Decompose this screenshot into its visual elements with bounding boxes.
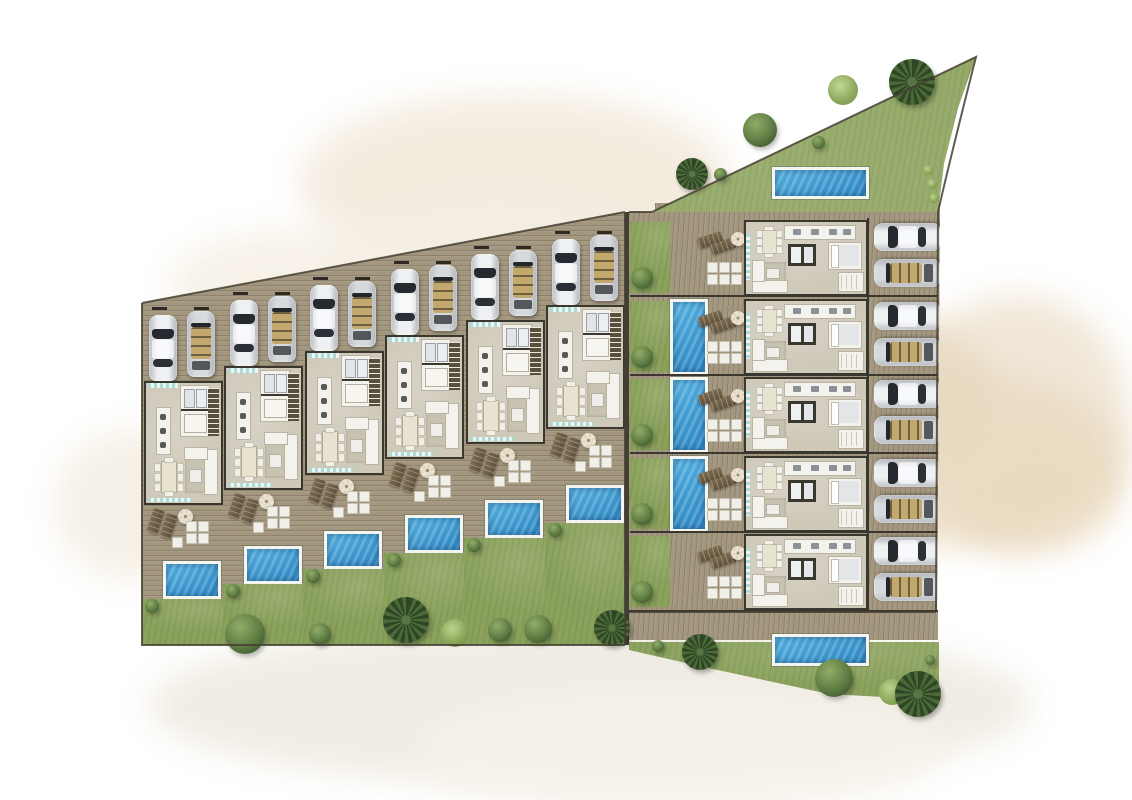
parking-bumper: [152, 307, 167, 310]
appliance-mark: [843, 386, 851, 392]
car-windshield: [886, 263, 890, 283]
car-cabin-tan: [594, 251, 614, 283]
villa-interior: [546, 305, 625, 429]
outdoor-cushion: [731, 262, 742, 273]
appliance-mark: [843, 543, 851, 549]
appliance-mark: [793, 386, 801, 392]
outdoor-cushion: [719, 431, 730, 442]
chair: [776, 317, 783, 325]
chair: [499, 422, 506, 431]
fern-plant: [441, 619, 469, 647]
parasol: [731, 311, 745, 325]
private-pool: [244, 546, 302, 584]
chair: [579, 387, 586, 396]
bath-closet-rooms: [582, 309, 612, 361]
chair: [776, 230, 783, 238]
garden-shrub: [929, 193, 939, 203]
sofa: [506, 386, 530, 399]
car-sedan: [391, 269, 419, 335]
car-rotated-body: [874, 338, 940, 366]
side-garden-lawn: [630, 379, 670, 450]
appliance-mark: [793, 229, 801, 235]
car-rear-window: [395, 313, 415, 321]
car-windshield: [888, 540, 898, 562]
palm-tree: [594, 610, 630, 646]
terrace-glazing: [389, 452, 433, 456]
site-plan: [0, 0, 1132, 800]
car-roof: [899, 305, 917, 327]
garden-lawn: [142, 599, 223, 645]
dining-table: [762, 544, 777, 568]
room-divider: [261, 394, 289, 396]
chair: [476, 422, 483, 431]
outdoor-cushion: [494, 476, 505, 487]
terrace-glazing: [148, 498, 192, 502]
sink-hob-mark: [401, 396, 407, 402]
chair: [395, 417, 402, 426]
outdoor-cushion: [575, 461, 586, 472]
dining-area: [754, 226, 782, 256]
parking-bumper: [516, 246, 531, 249]
outdoor-cushion: [253, 522, 264, 533]
round-tree: [815, 659, 853, 697]
side-garden-lawn: [630, 458, 670, 529]
car-cabin-tan: [890, 499, 922, 519]
sink-hob-mark: [321, 384, 327, 390]
chair: [164, 491, 174, 497]
north-amenity-pool: [772, 167, 869, 199]
chair: [776, 560, 783, 568]
bathtub: [586, 313, 597, 332]
villa-interior: [744, 299, 868, 375]
car-windshield: [886, 577, 890, 597]
parking-wall: [867, 454, 869, 532]
parking-bumper: [275, 292, 290, 295]
chair: [776, 403, 783, 411]
outdoor-cushion: [707, 353, 718, 364]
chair: [764, 305, 774, 310]
bedroom-bed: [828, 478, 862, 506]
car-windshield: [888, 226, 898, 248]
parasol: [731, 232, 745, 246]
wardrobe: [838, 272, 864, 292]
room-divider: [422, 363, 450, 365]
car-rear-window: [918, 463, 926, 483]
living-area: [184, 445, 219, 499]
sink-hob-mark: [160, 442, 166, 448]
car-rear-window: [556, 283, 576, 291]
palm-tree: [682, 634, 718, 670]
bed-pillow: [831, 559, 839, 582]
outdoor-cushion: [707, 274, 718, 285]
bathtub: [506, 328, 517, 347]
coffee-table: [591, 393, 604, 407]
garden-shrub: [927, 179, 937, 189]
coffee-table: [766, 347, 780, 358]
outdoor-cushion: [707, 576, 718, 587]
bath-fixture: [791, 483, 801, 499]
villa-interior: [305, 351, 384, 475]
car-windshield: [886, 420, 890, 440]
chair: [776, 309, 783, 317]
palm-tree: [895, 671, 941, 717]
outdoor-cushion: [707, 262, 718, 273]
sink-hob-mark: [240, 399, 246, 405]
car-convertible: [429, 265, 457, 331]
villa-interior: [385, 335, 464, 459]
car-roof: [233, 325, 255, 343]
vanity: [437, 343, 448, 362]
outdoor-cushion: [520, 472, 531, 483]
chair: [579, 397, 586, 406]
staircase: [208, 388, 219, 436]
chair: [556, 397, 563, 406]
pool-side-glazing: [746, 470, 750, 516]
bath-fixture: [804, 247, 813, 263]
dining-area: [476, 396, 504, 434]
car-roof: [899, 383, 917, 405]
bathroom-core: [788, 323, 816, 345]
outdoor-cushion: [186, 521, 197, 532]
closet: [345, 384, 368, 403]
chair: [756, 387, 763, 395]
car-convertible: [874, 573, 940, 601]
wardrobe-lines: [841, 589, 861, 603]
car-sedan: [874, 223, 940, 251]
kitchen-island: [478, 346, 493, 394]
chair: [418, 427, 425, 436]
appliance-mark: [829, 229, 837, 235]
car-windshield: [433, 277, 453, 281]
car-convertible: [874, 495, 940, 523]
car-convertible: [874, 259, 940, 287]
parking-wall: [867, 297, 869, 375]
car-rear-window: [918, 306, 926, 326]
villa-interior: [744, 220, 868, 296]
car-trunk: [514, 300, 532, 309]
bathroom-core: [788, 558, 816, 580]
room-divider: [181, 409, 209, 411]
chair: [756, 544, 763, 552]
bedroom-bed: [828, 242, 862, 270]
garden-shrub: [467, 538, 481, 552]
appliance-mark: [811, 543, 819, 549]
chair: [566, 415, 576, 421]
appliance-mark: [793, 465, 801, 471]
car-convertible: [874, 259, 940, 287]
outdoor-cushion: [267, 518, 278, 529]
outdoor-cushion: [347, 503, 358, 514]
chair: [395, 427, 402, 436]
car-windshield: [886, 342, 890, 362]
outdoor-cushion: [731, 576, 742, 587]
bathtub: [345, 359, 356, 378]
parking-bumper: [394, 261, 409, 264]
wardrobe: [838, 351, 864, 371]
parking-bumper: [555, 231, 570, 234]
outdoor-cushion: [731, 353, 742, 364]
chair: [154, 483, 161, 492]
sofa: [752, 574, 765, 596]
parking-bumper: [313, 277, 328, 280]
villa-unit: [545, 190, 626, 645]
outdoor-cushion: [347, 491, 358, 502]
closet: [184, 414, 207, 433]
car-roof: [152, 340, 174, 358]
bedroom-bed: [828, 556, 862, 584]
outdoor-cushion: [731, 274, 742, 285]
chair: [154, 473, 161, 482]
dining-table: [762, 387, 777, 411]
chair: [234, 448, 241, 457]
entry-glazing: [228, 368, 258, 373]
outdoor-cushion: [707, 510, 718, 521]
pool-side-glazing: [746, 391, 750, 437]
closet: [586, 338, 609, 357]
closet: [264, 399, 287, 418]
private-pool: [566, 485, 624, 523]
villa-unit: [629, 375, 940, 454]
sofa: [752, 260, 765, 282]
watercolor-wash: [420, 690, 940, 800]
chair: [486, 396, 496, 402]
boundary-wall: [625, 212, 629, 645]
side-plunge-pool: [670, 456, 708, 532]
car-roof: [313, 310, 335, 328]
garden-shrub: [145, 599, 159, 613]
outdoor-cushion: [508, 460, 519, 471]
outdoor-cushion: [707, 341, 718, 352]
car-rotated-body: [874, 459, 940, 487]
sink-hob-mark: [562, 352, 568, 358]
dining-table: [241, 446, 257, 478]
outdoor-cushion: [428, 487, 439, 498]
chair: [234, 458, 241, 467]
car-rear-window: [475, 298, 495, 306]
chair: [776, 466, 783, 474]
bathroom-core: [788, 480, 816, 502]
villa-unit: [629, 218, 940, 297]
car-cabin-tan: [191, 327, 211, 359]
outdoor-cushion: [719, 353, 730, 364]
chair: [556, 387, 563, 396]
car-windshield: [394, 283, 416, 293]
coffee-table: [430, 423, 443, 437]
dining-area: [556, 381, 584, 419]
chair: [756, 395, 763, 403]
chair: [418, 437, 425, 446]
chair: [556, 407, 563, 416]
garden-shrub: [923, 165, 933, 175]
bed-pillow: [831, 245, 839, 268]
outdoor-cushion: [172, 537, 183, 548]
chair: [776, 552, 783, 560]
car-sedan: [149, 315, 177, 381]
chair: [764, 226, 774, 231]
car-convertible: [874, 495, 940, 523]
chair: [579, 407, 586, 416]
entry-glazing: [148, 383, 178, 388]
round-tree: [488, 618, 512, 642]
car-convertible: [874, 338, 940, 366]
parking-bumper: [194, 307, 209, 310]
living-area: [345, 415, 380, 469]
appliance-mark: [829, 308, 837, 314]
staircase: [530, 327, 541, 375]
villa-unit: [629, 454, 940, 533]
palm-tree: [889, 59, 935, 105]
parking-wall: [867, 375, 869, 453]
car-convertible: [874, 573, 940, 601]
vanity: [357, 359, 368, 378]
car-roof: [899, 540, 917, 562]
car-convertible: [348, 281, 376, 347]
garden-shrub: [631, 424, 653, 446]
side-plunge-pool: [670, 299, 708, 375]
bath-closet-rooms: [260, 370, 290, 422]
dining-area: [315, 427, 343, 465]
entry-glazing: [389, 337, 419, 342]
sink-hob-mark: [401, 382, 407, 388]
appliance-mark: [843, 308, 851, 314]
car-sedan: [874, 537, 940, 565]
outdoor-cushion: [719, 262, 730, 273]
coffee-table: [269, 454, 282, 468]
kitchen-counter: [784, 225, 856, 240]
vanity: [276, 374, 287, 393]
car-rotated-body: [874, 537, 940, 565]
sink-hob-mark: [321, 398, 327, 404]
chair: [776, 482, 783, 490]
pool-side-glazing: [746, 313, 750, 359]
car-rotated-body: [874, 259, 940, 287]
car-sedan: [471, 254, 499, 320]
car-convertible: [874, 338, 940, 366]
bath-fixture: [804, 404, 813, 420]
private-pool: [485, 500, 543, 538]
side-plunge-pool: [670, 377, 708, 453]
car-windshield: [474, 268, 496, 278]
outdoor-cushion: [279, 518, 290, 529]
chair: [566, 381, 576, 387]
wardrobe: [838, 586, 864, 606]
car-windshield: [233, 314, 255, 324]
villa-interior: [466, 320, 545, 444]
chair: [499, 402, 506, 411]
round-tree: [524, 615, 552, 643]
car-trunk: [924, 500, 933, 518]
sofa: [752, 417, 765, 439]
car-cabin-tan: [433, 281, 453, 313]
appliance-mark: [843, 465, 851, 471]
wardrobe: [838, 508, 864, 528]
car-rear-window: [918, 227, 926, 247]
watercolor-wash: [950, 430, 1120, 550]
chair: [756, 474, 763, 482]
sink-hob-mark: [321, 412, 327, 418]
coffee-table: [766, 504, 780, 515]
outdoor-cushion: [719, 419, 730, 430]
garden-shrub: [925, 655, 935, 665]
car-rotated-body: [874, 223, 940, 251]
outdoor-cushion: [428, 475, 439, 486]
car-rotated-body: [874, 495, 940, 523]
parasol: [731, 389, 745, 403]
living-area: [506, 384, 541, 438]
chair: [776, 246, 783, 254]
garden-shrub: [631, 346, 653, 368]
parking-wall: [867, 218, 869, 296]
garden-shrub: [812, 136, 825, 149]
chair: [776, 387, 783, 395]
chair: [315, 433, 322, 442]
dining-table: [762, 309, 777, 333]
car-rear-window: [314, 329, 334, 337]
staircase: [288, 373, 299, 421]
car-sedan: [310, 285, 338, 351]
car-sedan: [230, 300, 258, 366]
chair: [315, 443, 322, 452]
living-area: [752, 258, 790, 292]
parking-bumper: [474, 246, 489, 249]
bath-fixture: [791, 561, 801, 577]
sink-hob-mark: [160, 428, 166, 434]
chair: [315, 453, 322, 462]
appliance-mark: [829, 465, 837, 471]
chair: [338, 453, 345, 462]
kitchen-island: [558, 331, 573, 379]
car-windshield: [513, 262, 533, 266]
dining-area: [154, 457, 182, 495]
chair: [338, 443, 345, 452]
dining-area: [754, 305, 782, 335]
sink-hob-mark: [482, 353, 488, 359]
outdoor-cushion: [719, 341, 730, 352]
sofa: [345, 417, 369, 430]
chair: [325, 427, 335, 433]
parking-wall: [867, 532, 869, 610]
chair: [395, 437, 402, 446]
chair: [756, 317, 763, 325]
sink-hob-mark: [482, 367, 488, 373]
parking-bumper: [233, 292, 248, 295]
chair: [405, 411, 415, 417]
kitchen-counter: [784, 304, 856, 319]
chair: [756, 466, 763, 474]
parking-bumper: [355, 277, 370, 280]
outdoor-cushion: [198, 521, 209, 532]
parking-bumper: [597, 231, 612, 234]
chair: [257, 448, 264, 457]
bath-closet-rooms: [421, 339, 451, 391]
garden-shrub: [226, 584, 240, 598]
bathroom-core: [788, 244, 816, 266]
outdoor-cushion: [707, 498, 718, 509]
closet: [506, 353, 529, 372]
car-rear-window: [918, 541, 926, 561]
bed-blanket: [839, 245, 859, 266]
sink-hob-mark: [240, 427, 246, 433]
car-convertible: [187, 311, 215, 377]
bath-fixture: [804, 561, 813, 577]
coffee-table: [766, 582, 780, 593]
car-cabin-tan: [352, 297, 372, 329]
car-rotated-body: [874, 573, 940, 601]
car-sedan: [874, 302, 940, 330]
bed-blanket: [839, 559, 859, 580]
outdoor-cushion: [601, 457, 612, 468]
garden-shrub: [714, 168, 727, 181]
